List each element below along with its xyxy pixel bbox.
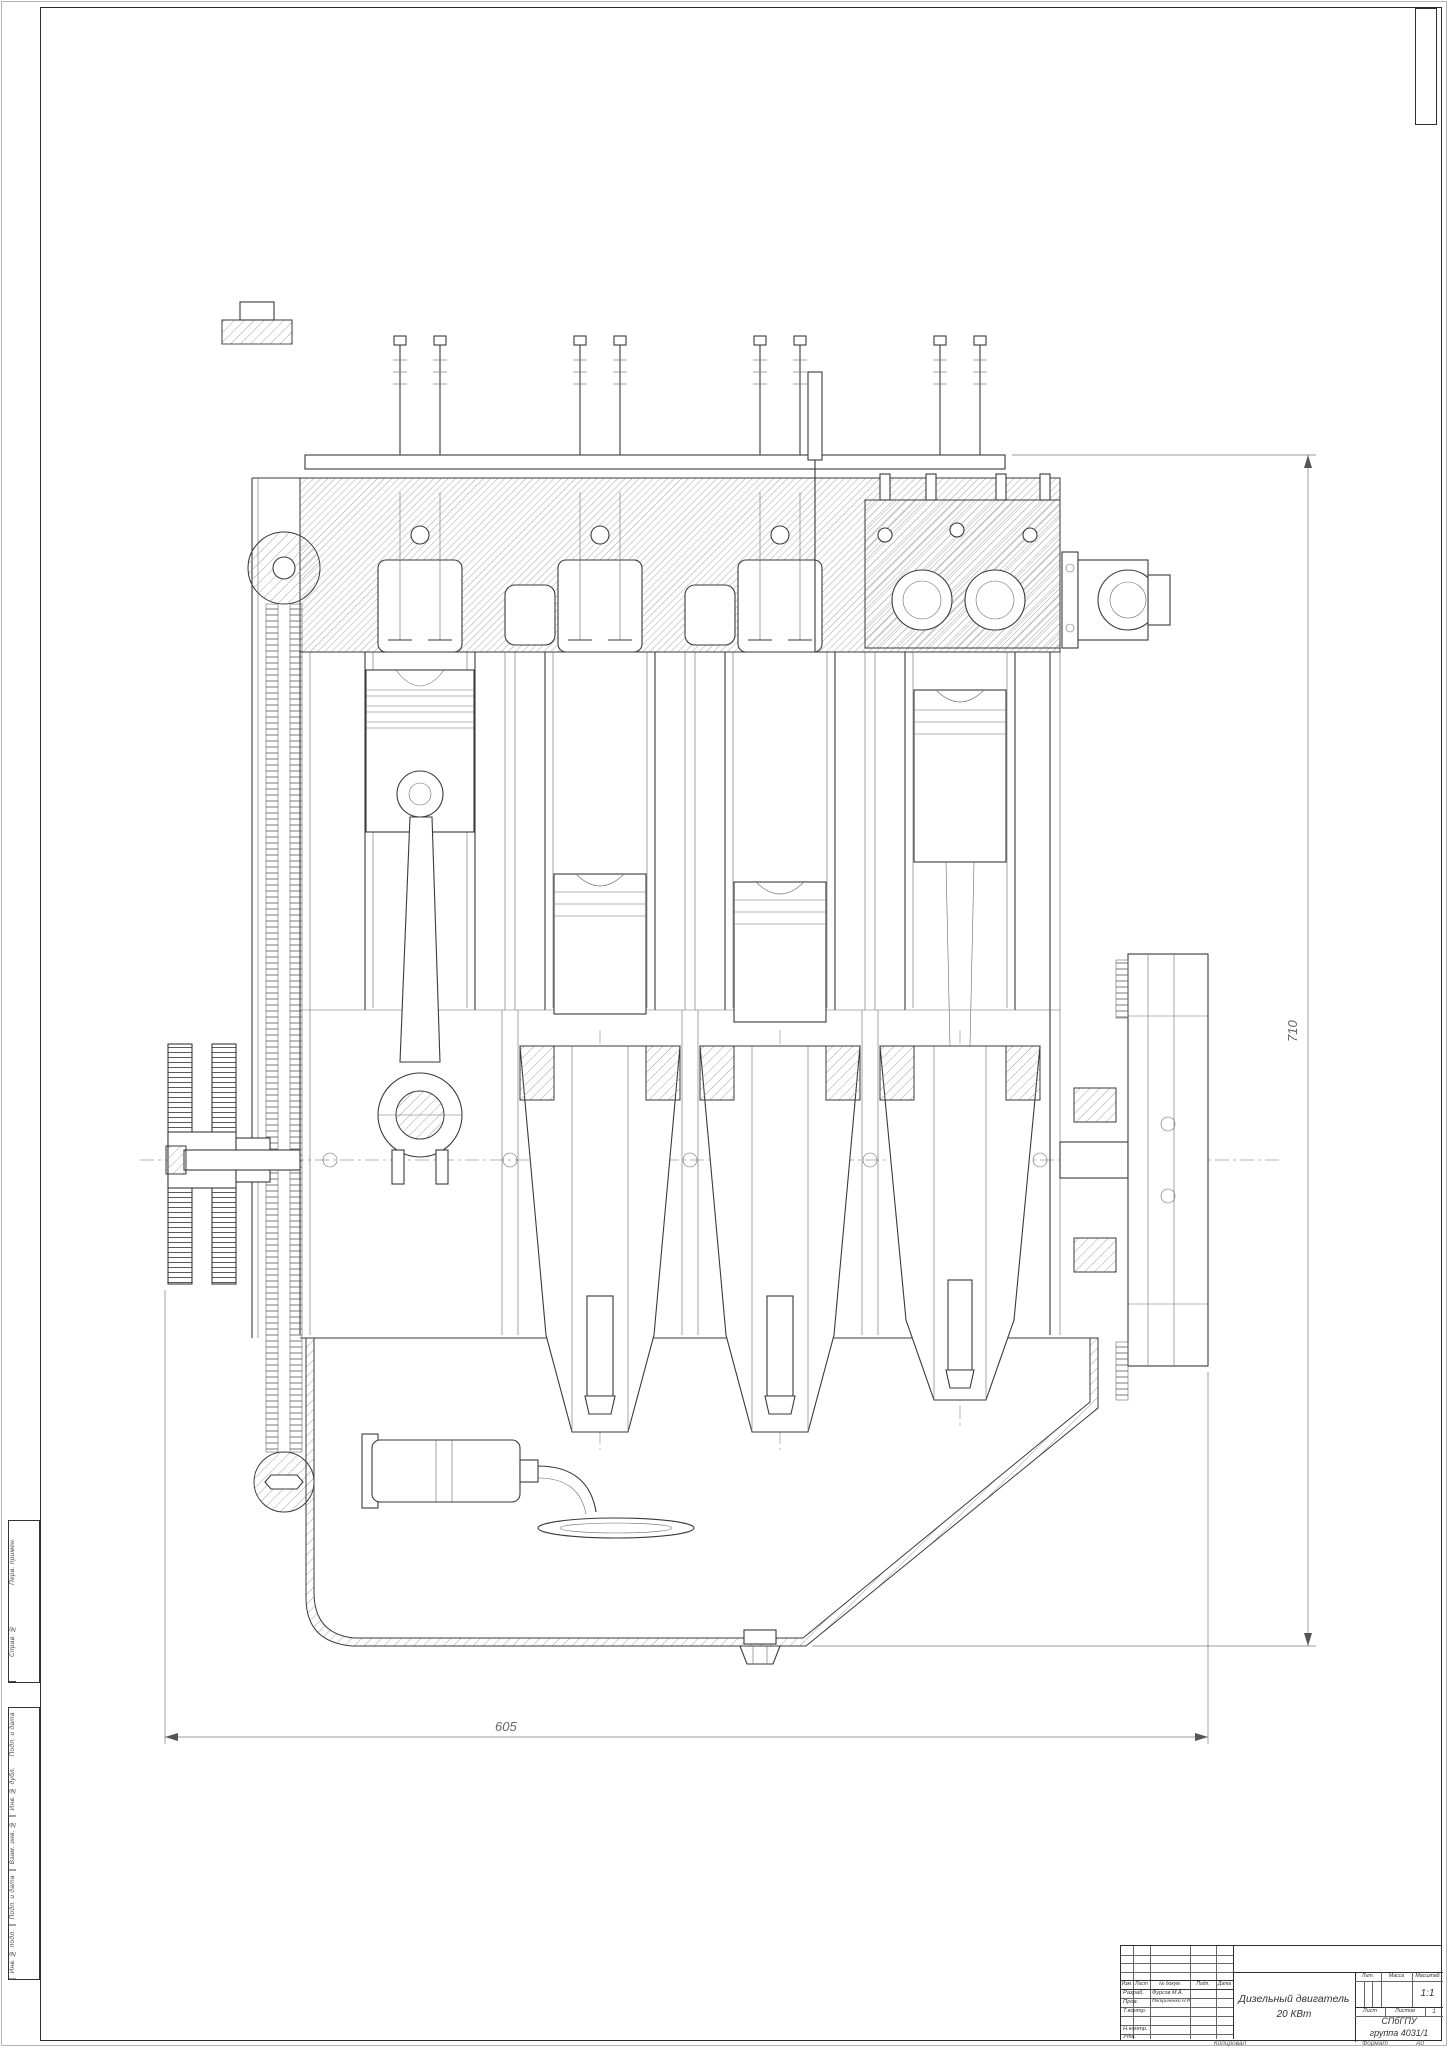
corner-ref-box [1415, 8, 1437, 125]
scale-label: Масштаб [1412, 1972, 1443, 1981]
col-podp: Подп. [1190, 1980, 1216, 1989]
scale-value: 1:1 [1412, 1981, 1443, 2007]
copied-label: Копировал [1140, 2041, 1320, 2048]
drawing-title: Дизельный двигатель 20 КВт [1233, 1972, 1355, 2042]
col-izm: Изм. [1121, 1980, 1133, 1989]
format-label: Формат [1345, 2041, 1405, 2048]
row-razrab-label: Разраб. [1121, 1989, 1152, 1998]
sheets-label: Листов [1385, 2007, 1425, 2016]
col-docnum: № докум. [1150, 1980, 1190, 1989]
organization-line2: группа 4031/1 [1355, 2028, 1443, 2039]
sheet-label: Лист [1355, 2007, 1385, 2016]
organization-line1: СПбГПУ [1355, 2016, 1443, 2027]
sheets-value: 1 [1425, 2007, 1443, 2016]
left-stamp-group-1: Перв. примен. Справ. № [8, 1520, 40, 1683]
col-list: Лист [1133, 1980, 1150, 1989]
stamp-podp-data-2: Подп. и дата [9, 1871, 16, 1926]
stamp-inv-dubl: Инв. № дубл. [9, 1762, 16, 1817]
row-nkontr-label: Н.контр. [1121, 2025, 1152, 2034]
row-prov-name: Петриченко Н.Р. [1150, 1998, 1192, 2007]
drawing-title-line2: 20 КВт [1233, 2009, 1355, 2022]
stamp-perv-primen: Перв. примен. [9, 1521, 16, 1601]
drawing-frame [40, 7, 1442, 2041]
stamp-inv-podl: Инв. № подл. [9, 1925, 16, 1980]
title-block: Изм. Лист № докум. Подп. Дата Разраб. Фу… [1120, 1945, 1442, 2041]
drawing-title-line1: Дизельный двигатель [1233, 1993, 1355, 2006]
row-blank-label [1121, 2016, 1152, 2025]
col-data: Дата [1216, 1980, 1233, 1989]
lit-label: Лит. [1355, 1972, 1381, 1981]
stamp-vzam-inv: Взам. инв. № [9, 1816, 16, 1871]
stamp-sprav-no: Справ. № [9, 1601, 16, 1682]
row-tkontr-label: Т.контр. [1121, 2007, 1152, 2016]
stamp-podp-data-1: Подп. и дата [9, 1708, 16, 1762]
mass-label: Масса [1381, 1972, 1412, 1981]
format-value: A0 [1405, 2041, 1435, 2048]
drawing-sheet: .ol{fill:#fff;stroke:#3a3a3a;stroke-widt… [0, 0, 1449, 2048]
row-razrab-name: Фурсов М.А. [1150, 1989, 1192, 1998]
organization: СПбГПУ группа 4031/1 [1355, 2016, 1443, 2039]
row-prov-label: Пров. [1121, 1998, 1152, 2007]
left-stamp-group-2: Подп. и дата Инв. № дубл. Взам. инв. № П… [8, 1707, 40, 1980]
